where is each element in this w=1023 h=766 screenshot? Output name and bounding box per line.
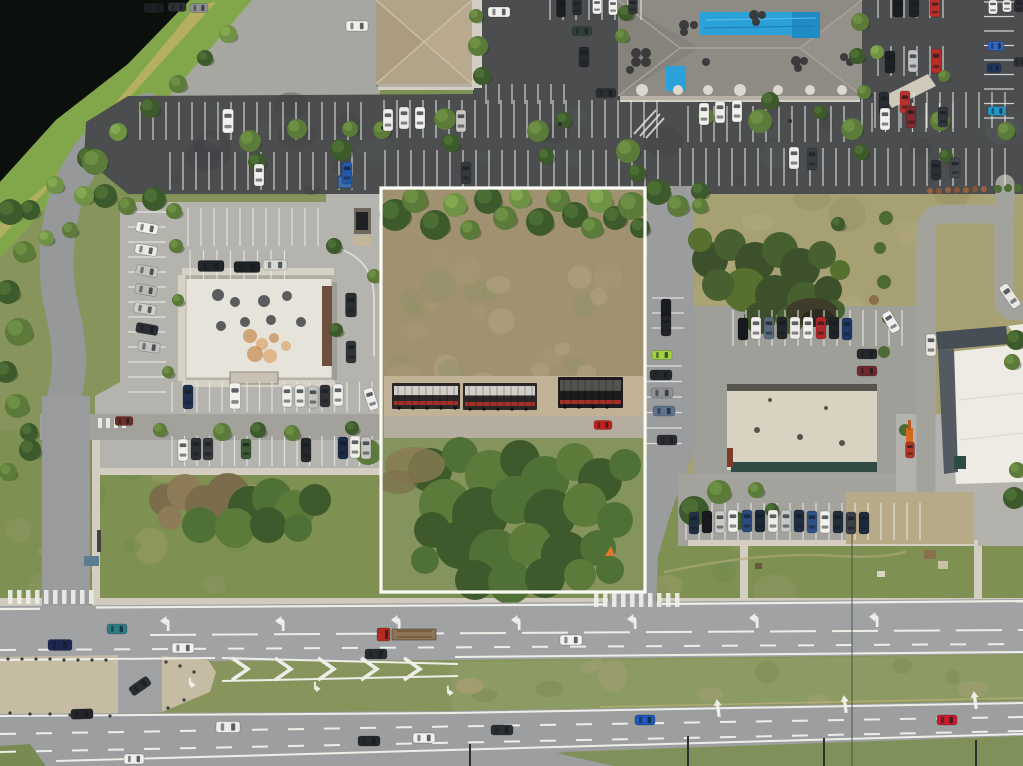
vehicle <box>230 383 241 409</box>
vehicle <box>880 108 890 130</box>
vehicle <box>573 0 582 15</box>
vehicle <box>635 715 655 725</box>
vehicle <box>333 384 343 406</box>
vehicle <box>859 512 869 534</box>
vehicle <box>906 442 915 458</box>
vehicle <box>846 512 856 534</box>
vehicle <box>560 635 582 645</box>
vehicle <box>308 386 318 408</box>
vehicle <box>301 438 311 462</box>
vehicle <box>885 51 895 73</box>
vehicle <box>742 510 752 532</box>
restaurant-canopy <box>230 372 278 384</box>
walk-right-vert-1 <box>974 546 982 602</box>
vehicle <box>172 643 194 653</box>
vehicle <box>254 164 264 186</box>
vehicle <box>579 47 589 67</box>
vehicle <box>738 318 748 340</box>
right-building-awning <box>731 462 877 472</box>
vehicle <box>755 510 765 532</box>
restaurant-parapet <box>186 276 332 279</box>
orange-lift-arm <box>908 420 911 430</box>
right-building-north <box>727 384 877 391</box>
vehicle <box>661 316 671 336</box>
blue-tarp-large-dark <box>792 12 820 38</box>
vehicle <box>383 109 393 131</box>
vehicle <box>241 439 251 459</box>
vehicle <box>816 317 826 339</box>
vehicle <box>1014 58 1023 67</box>
vehicle <box>909 0 919 17</box>
restaurant-walk-left <box>178 275 186 381</box>
vehicle <box>777 317 787 339</box>
vehicle <box>338 437 348 459</box>
vehicle <box>346 21 368 31</box>
enclosure-truck <box>356 212 368 230</box>
hedge-green <box>994 184 1022 193</box>
vehicle <box>842 318 852 340</box>
vehicle <box>807 148 817 170</box>
vehicle <box>234 262 260 273</box>
median-beige-1 <box>0 655 118 717</box>
bench-pad-1 <box>924 550 936 559</box>
white-building-unit <box>954 456 966 469</box>
vehicle <box>652 351 672 360</box>
vehicle <box>803 317 813 339</box>
vehicle <box>1015 0 1023 12</box>
vehicle <box>699 103 709 125</box>
bench-pad-4 <box>755 563 762 569</box>
median-dirt-patch <box>456 678 484 694</box>
vehicle <box>987 64 1001 73</box>
road-sign <box>97 530 101 552</box>
vehicle <box>931 160 941 180</box>
vehicle <box>124 754 144 764</box>
vehicle <box>365 649 387 659</box>
vehicle <box>988 107 1006 116</box>
vehicle <box>651 388 673 398</box>
vehicle <box>829 317 839 339</box>
vehicle <box>629 0 638 14</box>
truck-with-trailer <box>377 628 436 641</box>
vehicle <box>350 436 360 458</box>
vehicle <box>653 406 675 416</box>
vehicle <box>794 510 804 532</box>
vehicle <box>926 334 936 356</box>
vehicle <box>781 510 791 532</box>
vehicle <box>764 317 774 339</box>
walk-parking-south <box>100 468 382 475</box>
vehicle <box>178 439 188 461</box>
vehicle <box>342 162 352 184</box>
vehicle <box>48 640 72 651</box>
vehicle <box>657 435 677 445</box>
vehicle <box>593 0 602 14</box>
utility-box-blue <box>84 556 99 566</box>
vehicle <box>857 349 877 359</box>
vehicle <box>415 107 425 129</box>
parcel-dead-brush2 <box>378 470 418 494</box>
vehicle <box>346 293 357 317</box>
vehicle <box>893 0 903 17</box>
vehicle <box>820 511 830 533</box>
vehicle <box>989 0 998 14</box>
vehicle <box>789 147 799 169</box>
vehicle <box>609 0 618 15</box>
vehicle <box>751 317 761 339</box>
vehicle <box>790 317 800 339</box>
vehicle <box>715 511 725 533</box>
vehicle <box>71 709 93 720</box>
vehicle <box>461 162 471 184</box>
vehicle <box>596 89 616 98</box>
vehicle <box>857 366 877 376</box>
bench-pad-3 <box>877 571 885 577</box>
vehicle <box>399 107 409 129</box>
vehicle <box>833 511 843 533</box>
car-parcel-red <box>594 421 612 430</box>
vehicle <box>557 0 566 17</box>
vehicle <box>768 510 778 532</box>
vehicle <box>282 385 292 407</box>
vehicle <box>906 106 916 128</box>
scene-root <box>0 0 1023 766</box>
aerial-photo-surface <box>0 0 1023 766</box>
vehicle <box>488 7 510 17</box>
walk-right-vert-2 <box>740 546 748 602</box>
orange-lift <box>906 428 913 444</box>
vehicle <box>938 107 948 127</box>
vehicle <box>107 624 127 634</box>
right-building-roof <box>727 388 877 470</box>
vehicle <box>168 3 186 12</box>
vehicle <box>689 512 699 534</box>
vehicle <box>203 438 213 460</box>
restaurant-roof <box>186 276 332 378</box>
vehicle <box>988 42 1004 51</box>
vehicle <box>263 260 287 270</box>
walk-side-road <box>92 440 100 606</box>
vehicle <box>594 421 612 430</box>
vehicle <box>950 158 960 178</box>
vehicle <box>358 736 380 746</box>
vehicle <box>491 725 513 735</box>
vehicle <box>346 341 356 363</box>
enclosure-pad <box>353 236 371 246</box>
vehicle <box>650 370 672 380</box>
vehicle <box>320 385 330 407</box>
aerial-photo-svg <box>0 0 1023 766</box>
vehicle <box>728 510 738 532</box>
vehicle <box>807 511 817 533</box>
vehicle <box>198 261 224 272</box>
vehicle <box>191 438 201 460</box>
vehicle <box>732 100 742 122</box>
bench-pad-2 <box>938 561 948 569</box>
big-bldg-shadow <box>618 96 862 100</box>
west-side-road <box>42 396 90 608</box>
beige-shadow <box>376 84 472 87</box>
vehicle <box>908 50 918 72</box>
vehicle <box>190 4 208 13</box>
vehicle <box>715 101 725 123</box>
vehicle <box>183 385 193 409</box>
vehicle <box>295 385 305 407</box>
vehicle <box>1003 0 1012 12</box>
vehicle <box>456 110 466 132</box>
vehicle <box>931 49 941 73</box>
vehicle <box>361 437 371 459</box>
vehicle <box>930 0 940 17</box>
vehicle <box>216 722 240 733</box>
vehicle <box>223 109 234 133</box>
right-building-column <box>727 448 733 467</box>
vehicle <box>144 3 164 13</box>
vehicle <box>937 715 957 725</box>
vehicle <box>115 417 133 426</box>
vehicle <box>413 733 435 743</box>
vehicle <box>572 27 592 36</box>
vehicle <box>702 511 712 533</box>
